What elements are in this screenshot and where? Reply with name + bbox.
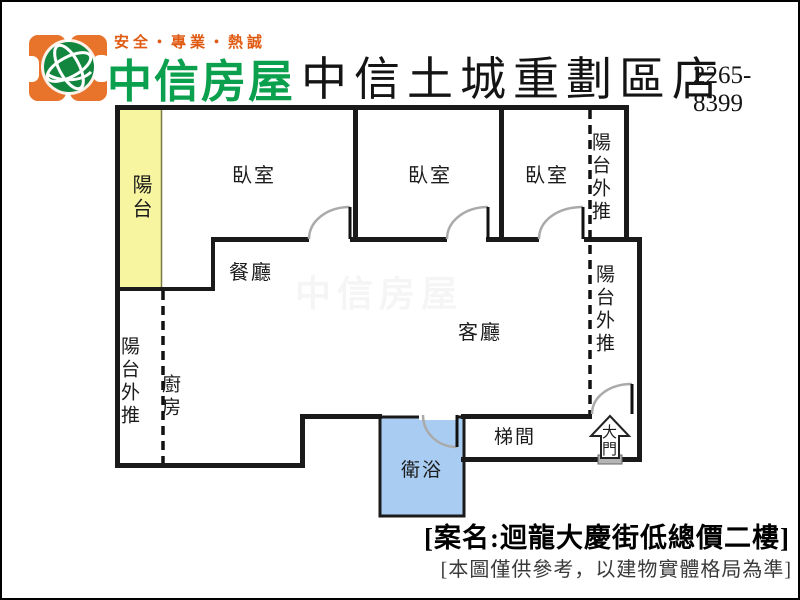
bedroom3-door-arc xyxy=(539,207,583,239)
label-bedroom-left: 臥室 xyxy=(219,159,289,188)
wall-bedrooms-bottom-a xyxy=(211,237,309,242)
wall-bedrooms-bottom-c xyxy=(486,237,539,242)
label-bedroom-right: 臥室 xyxy=(512,159,582,188)
wall-right-upper xyxy=(624,105,629,242)
label-living-room: 客廳 xyxy=(445,316,515,345)
label-main-door: 大門 xyxy=(600,424,615,458)
label-balcony-ext-left: 陽台外推 xyxy=(119,336,138,428)
disclaimer-caption: [本圖僅供參考，以建物實體格局為準] xyxy=(392,553,792,582)
label-bathroom: 衛浴 xyxy=(387,455,457,482)
bedroom2-door-arc xyxy=(447,207,488,239)
wall-living-bottom xyxy=(300,414,382,419)
wall-stairhall-top xyxy=(461,414,592,419)
label-dining-room: 餐廳 xyxy=(215,256,287,285)
wall-top xyxy=(115,105,629,110)
wall-right-step xyxy=(584,237,642,242)
wall-step-vertical xyxy=(300,414,305,468)
label-bedroom-middle: 臥室 xyxy=(395,159,465,188)
label-kitchen: 廚房 xyxy=(160,374,179,420)
label-balcony-ext-top-right: 陽台外推 xyxy=(590,132,609,224)
label-stair-hall: 梯間 xyxy=(485,422,545,449)
wall-bottom-left xyxy=(115,463,305,468)
bedroom1-door-arc xyxy=(309,207,350,239)
wall-below-balcony xyxy=(115,287,215,291)
bathroom-door-gap xyxy=(419,413,457,420)
entry-door-arc xyxy=(592,384,632,414)
label-balcony-ext-right: 陽台外推 xyxy=(594,264,613,356)
wall-bedroom-separator-1 xyxy=(353,105,358,242)
label-balcony: 陽台 xyxy=(130,174,150,222)
case-name-caption: [案名:迴龍大慶街低總價二樓] xyxy=(392,516,790,555)
flyer-page: 安全・專業・熱誠 中信房屋 中信土城重劃區店 2265-8399 xyxy=(0,0,800,600)
watermark: 中信房屋 xyxy=(295,265,463,317)
wall-bedroom-separator-2 xyxy=(499,105,504,242)
wall-bedrooms-bottom-b xyxy=(350,237,447,242)
wall-right-lower xyxy=(637,239,642,462)
